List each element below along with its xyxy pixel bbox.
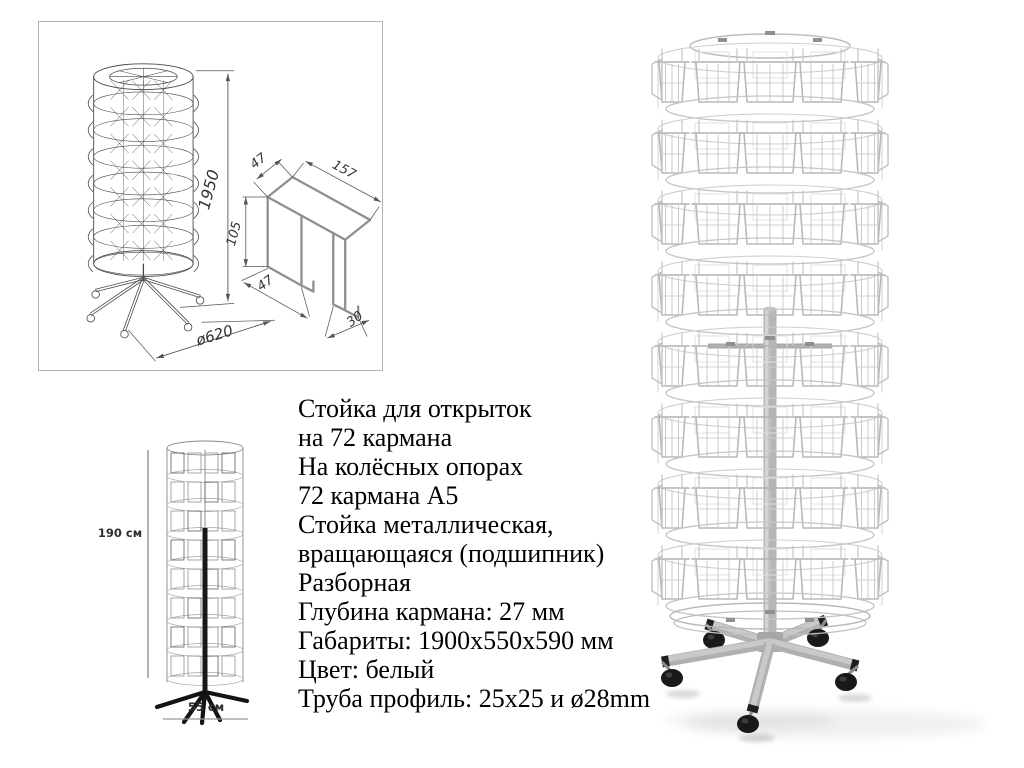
profile-top-width-label: 47 [247, 150, 270, 172]
scale-width-label: 55 см [188, 700, 224, 714]
base-diameter-dimension-label: ø620 [193, 321, 235, 349]
scale-drawing-panel: 190 см 55 см [60, 420, 290, 750]
stand-wireframe-and-profile-drawing [87, 64, 381, 361]
scale-drawing-figure [148, 441, 248, 723]
product-photo [600, 12, 1024, 762]
profile-bottom-width-label: 47 [255, 272, 278, 294]
stand-photo-illustration [600, 12, 1024, 762]
scale-drawing: 190 см 55 см [60, 420, 290, 750]
height-dimension-label: 1950 [194, 168, 223, 212]
wire-stand-figure [652, 31, 985, 742]
profile-top-length-label: 157 [329, 158, 358, 183]
scale-height-label: 190 см [98, 526, 142, 540]
profile-side-height-label: 105 [224, 220, 245, 248]
product-sheet: 1950 ø620 47 157 105 47 30 190 см 55 см … [0, 0, 1024, 768]
technical-drawing: 1950 ø620 47 157 105 47 30 [39, 22, 382, 370]
technical-drawing-panel: 1950 ø620 47 157 105 47 30 [38, 21, 383, 371]
